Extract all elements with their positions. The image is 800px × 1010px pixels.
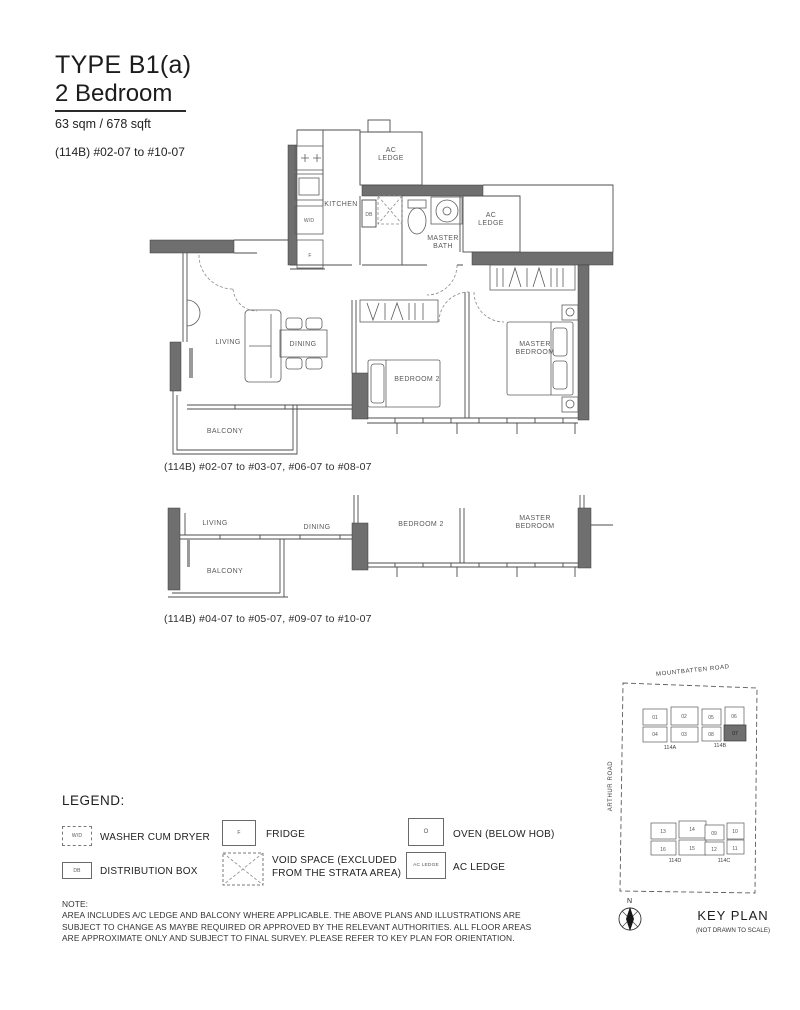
note-body: AREA INCLUDES A/C LEDGE AND BALCONY WHER… (62, 910, 538, 944)
plan-main-caption: (114B) #02-07 to #03-07, #06-07 to #08-0… (164, 461, 372, 473)
room-label-kitchen: KITCHEN (324, 201, 358, 208)
svg-text:114C: 114C (718, 858, 731, 864)
note: NOTE: AREA INCLUDES A/C LEDGE AND BALCON… (62, 899, 538, 944)
svg-text:11: 11 (732, 846, 737, 852)
svg-text:14: 14 (689, 827, 695, 833)
room-label-master-bedroom: MASTERBEDROOM (516, 341, 555, 356)
legend-label-oven: OVEN (BELOW HOB) (453, 828, 555, 841)
room-label-ac-ledge-right: ACLEDGE (478, 212, 504, 227)
svg-text:03: 03 (681, 732, 687, 738)
svg-text:15: 15 (689, 846, 695, 852)
road-label-left: ARTHUR ROAD (608, 761, 614, 812)
floorplan-brochure-page: TYPE B1(a) 2 Bedroom 63 sqm / 678 sqft (… (0, 0, 800, 1010)
legend-label-db: DISTRIBUTION BOX (100, 865, 198, 878)
room-label-balcony: BALCONY (207, 428, 243, 435)
legend-label-fridge: FRIDGE (266, 828, 305, 841)
svg-text:10: 10 (732, 829, 738, 835)
legend-label-ac-ledge: AC LEDGE (453, 861, 505, 874)
legend-symbol-ac-ledge: AC LEDGE (406, 852, 446, 879)
page-title: TYPE B1(a) (55, 52, 191, 80)
void-space-icon (222, 852, 264, 886)
svg-text:02: 02 (681, 714, 687, 720)
svg-text:114B: 114B (714, 743, 727, 749)
note-heading: NOTE: (62, 899, 538, 910)
svg-text:05: 05 (708, 715, 714, 721)
svg-text:08: 08 (708, 732, 714, 738)
svg-text:04: 04 (652, 732, 658, 738)
legend-symbol-void (222, 852, 264, 886)
room-label-balcony: BALCONY (207, 568, 243, 575)
room-label-ac-ledge-top: ACLEDGE (378, 147, 404, 162)
svg-text:12: 12 (711, 847, 717, 853)
svg-text:01: 01 (652, 715, 658, 721)
room-label-living: LIVING (215, 339, 240, 346)
legend-symbol-washer-dryer: W/D (62, 826, 92, 846)
svg-text:114D: 114D (669, 858, 682, 864)
room-label-bedroom2: BEDROOM 2 (394, 376, 440, 383)
svg-text:07: 07 (732, 731, 738, 737)
legend-symbol-fridge: F (222, 820, 256, 846)
svg-text:06: 06 (731, 714, 737, 720)
plan-alt-caption: (114B) #04-07 to #05-07, #09-07 to #10-0… (164, 613, 372, 625)
svg-text:09: 09 (711, 831, 717, 837)
db-symbol: DB (365, 212, 373, 218)
legend-label-void: VOID SPACE (EXCLUDED FROM THE STRATA ARE… (272, 854, 401, 880)
room-label-master-bath: MASTERBATH (427, 235, 459, 250)
svg-text:16: 16 (660, 847, 666, 853)
svg-text:13: 13 (660, 829, 666, 835)
legend-label-washer-dryer: WASHER CUM DRYER (100, 831, 210, 844)
legend-symbol-db: DB (62, 862, 92, 879)
wd-symbol: W/D (304, 218, 315, 224)
svg-text:114A: 114A (664, 745, 677, 751)
key-plan-subtitle: (NOT DRAWN TO SCALE) (696, 927, 770, 934)
fridge-symbol: F (308, 253, 311, 259)
room-label-living: LIVING (202, 520, 227, 527)
road-label-top: MOUNTBATTEN ROAD (656, 664, 730, 678)
floor-plan-alt: LIVING DINING BEDROOM 2 MASTERBEDROOM BA… (145, 495, 615, 620)
legend-symbol-oven: O (408, 818, 444, 846)
page-subtitle: 2 Bedroom (55, 80, 186, 113)
floor-plan-main: KITCHEN ACLEDGE DB W/D F MASTERBATH ACLE… (145, 118, 615, 480)
compass-north-label: N (627, 898, 632, 905)
legend-title: LEGEND: (62, 793, 125, 808)
room-label-dining: DINING (304, 524, 331, 531)
room-label-bedroom2: BEDROOM 2 (398, 521, 444, 528)
thin-walls (168, 495, 613, 597)
key-plan: MOUNTBATTEN ROAD ARTHUR ROAD 01 02 04 03… (598, 656, 800, 948)
thin-walls (173, 120, 613, 454)
key-plan-title: KEY PLAN (697, 908, 768, 923)
room-label-dining: DINING (290, 341, 317, 348)
void-and-door-swings (199, 196, 504, 322)
compass-icon: N (619, 898, 641, 931)
room-label-master-bedroom: MASTERBEDROOM (516, 515, 555, 530)
